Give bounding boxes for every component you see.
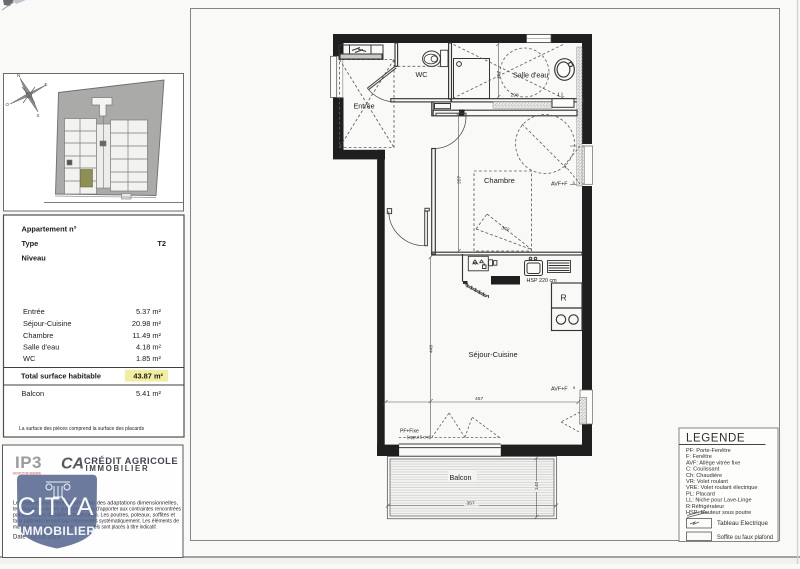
svg-text:E: E [45,82,48,87]
svg-text:LEGENDE: LEGENDE [686,433,745,445]
svg-text:11.49 m²: 11.49 m² [132,331,161,340]
svg-text:1.85 m²: 1.85 m² [136,354,162,363]
svg-text:WC: WC [23,354,36,363]
svg-text:Type: Type [22,239,39,248]
svg-text:IMMOBILIER: IMMOBILIER [18,524,95,538]
svg-text:R:Réfrigérateur: R:Réfrigérateur [686,504,724,510]
svg-text:Tableau Electrique: Tableau Electrique [717,520,768,527]
svg-text:167: 167 [496,71,502,79]
svg-text:AVF+F: AVF+F [551,182,568,188]
svg-text:Chambre: Chambre [484,176,515,185]
svg-text:Soffite ou faux plafond: Soffite ou faux plafond [717,534,773,541]
svg-text:PF: Porte-Fenêtre: PF: Porte-Fenêtre [686,448,731,454]
svg-text:43.87 m²: 43.87 m² [133,372,163,381]
svg-text:357: 357 [467,501,475,507]
svg-text:Total surface habitable: Total surface habitable [21,372,101,381]
svg-text:O: O [6,102,10,107]
svg-text:Entrée: Entrée [23,307,45,316]
svg-text:CITYA: CITYA [18,493,95,521]
svg-text:457: 457 [475,396,483,402]
svg-text:357: 357 [456,176,462,184]
svg-text:5.37 m²: 5.37 m² [136,307,162,316]
svg-text:20.98 m²: 20.98 m² [132,319,162,328]
svg-text:VR: Volet roulant: VR: Volet roulant [686,479,728,485]
svg-text:5: 5 [573,385,575,390]
svg-text:Séjour-Cuisine: Séjour-Cuisine [469,350,518,359]
svg-text:F: Fenêtre: F: Fenêtre [686,454,712,460]
svg-text:La surface des pièces comprend: La surface des pièces comprend la surfac… [19,426,145,432]
svg-text:Salle d'eau: Salle d'eau [23,343,59,352]
svg-text:VRE: Volet roulant électrique: VRE: Volet roulant électrique [686,485,758,491]
svg-text:CA: CA [61,456,84,473]
svg-text:5.41 m²: 5.41 m² [136,389,162,398]
svg-text:4.18 m²: 4.18 m² [136,343,162,352]
svg-text:PL: Placard: PL: Placard [686,491,715,497]
svg-text:IMMOBILIER: IMMOBILIER [86,464,150,473]
svg-text:Séjour-Cuisine: Séjour-Cuisine [23,319,71,328]
svg-text:3: 3 [573,180,575,185]
svg-text:140: 140 [534,482,540,490]
svg-text:Appartement n°: Appartement n° [22,225,77,234]
svg-text:Balcon: Balcon [22,389,45,398]
svg-text:LL: Niche pour Lave-Linge: LL: Niche pour Lave-Linge [686,498,752,504]
svg-text:449: 449 [428,345,434,353]
svg-text:Niveau: Niveau [22,254,47,263]
svg-text:AVF: Allège vitrée fixe: AVF: Allège vitrée fixe [686,460,740,466]
svg-text:298: 298 [511,93,519,99]
svg-text:T2: T2 [157,239,166,248]
svg-text:Ch: Chaudière: Ch: Chaudière [686,473,722,479]
svg-text:R: R [561,293,567,303]
svg-text:IP3: IP3 [15,453,42,472]
svg-text:N: N [17,73,20,78]
svg-text:Salle d'eau: Salle d'eau [513,71,548,80]
svg-text:Chambre: Chambre [23,331,53,340]
svg-text:S: S [37,113,40,118]
svg-text:Entrée: Entrée [354,102,375,111]
svg-text:(appui 6 cm): (appui 6 cm) [407,435,431,440]
svg-text:Balcon: Balcon [450,473,472,482]
svg-text:AVF+F: AVF+F [551,387,568,393]
svg-text:WC: WC [416,70,428,79]
svg-text:C: Coulissant: C: Coulissant [686,467,720,473]
svg-text:LL: LL [558,93,565,99]
